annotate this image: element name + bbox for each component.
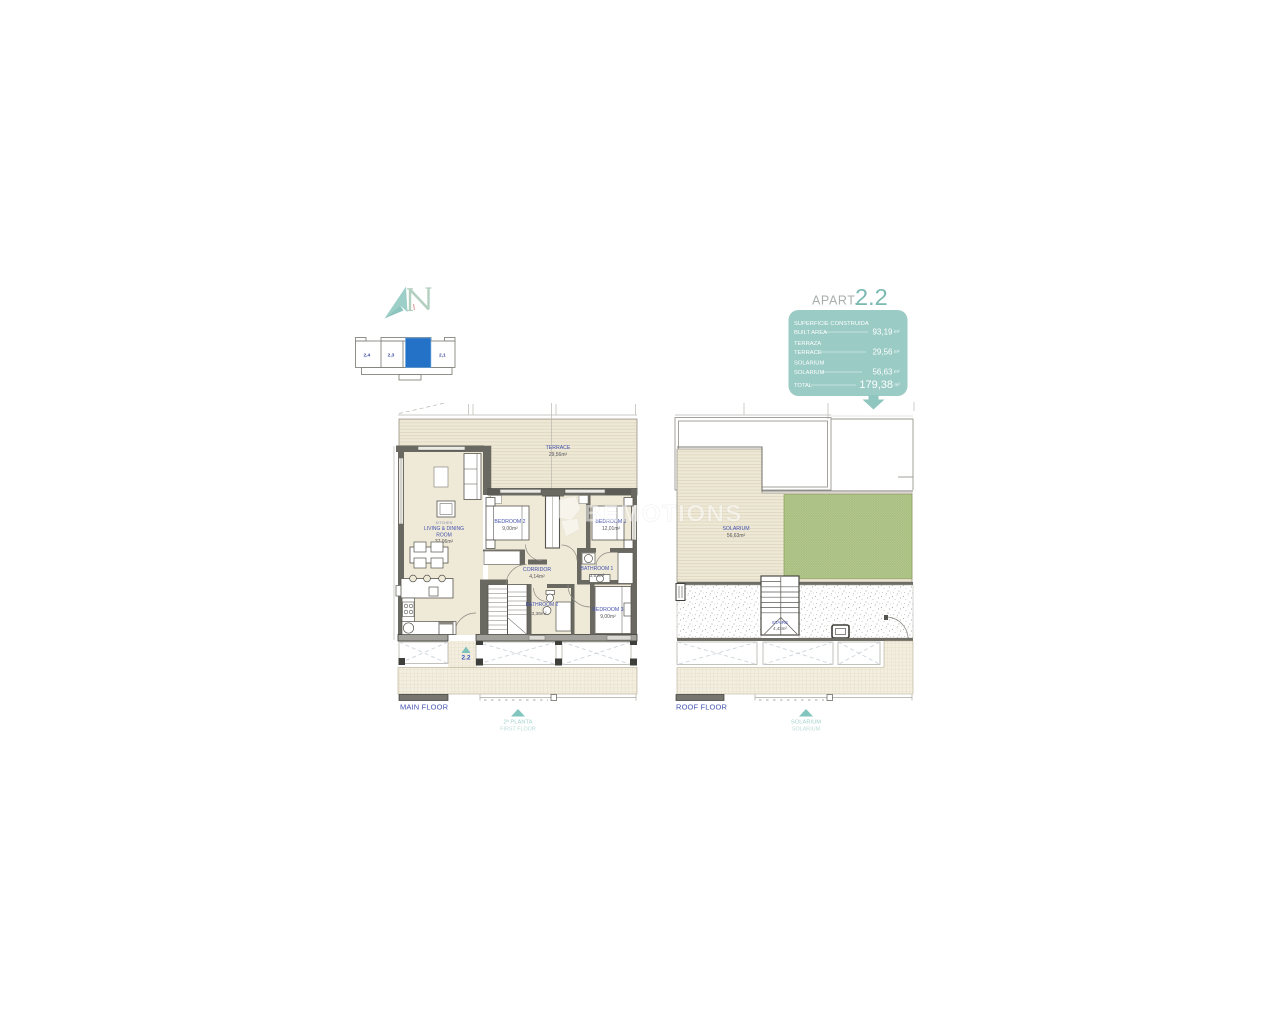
svg-text:LIVING & DINING: LIVING & DINING	[424, 526, 464, 532]
svg-text:ROOM: ROOM	[436, 533, 452, 539]
svg-text:CORRIDOR: CORRIDOR	[523, 567, 551, 573]
svg-text:m²: m²	[894, 329, 900, 334]
svg-text:29,56: 29,56	[872, 348, 893, 357]
svg-text:9,00m²: 9,00m²	[502, 526, 518, 532]
svg-text:TOTAL: TOTAL	[794, 383, 813, 389]
svg-text:BATHROOM 1: BATHROOM 1	[581, 566, 614, 572]
svg-text:SOLARIUM: SOLARIUM	[792, 727, 821, 733]
svg-text:m²: m²	[895, 382, 901, 387]
svg-text:APART.: APART.	[812, 294, 858, 308]
svg-text:TERRAZA: TERRAZA	[794, 341, 821, 347]
svg-text:BEMOTIONS: BEMOTIONS	[584, 501, 743, 528]
svg-text:m²: m²	[894, 349, 900, 354]
svg-text:4,14m²: 4,14m²	[529, 574, 545, 580]
svg-text:29,56m²: 29,56m²	[549, 452, 568, 458]
svg-text:BUILT AREA: BUILT AREA	[794, 330, 827, 336]
svg-text:3,52m²: 3,52m²	[590, 573, 605, 579]
svg-text:56,63: 56,63	[872, 368, 893, 377]
svg-text:2,4: 2,4	[363, 353, 370, 359]
svg-text:SOLARIUM: SOLARIUM	[794, 361, 824, 367]
svg-text:2,1: 2,1	[439, 353, 446, 359]
svg-text:SOLARIUM: SOLARIUM	[794, 370, 824, 376]
svg-text:2.2: 2.2	[855, 284, 888, 310]
svg-text:TERRACE: TERRACE	[546, 445, 571, 451]
svg-text:FIRST FLOOR: FIRST FLOOR	[500, 727, 536, 733]
svg-text:m²: m²	[894, 369, 900, 374]
svg-text:STAIRS: STAIRS	[772, 620, 788, 625]
svg-text:2,3: 2,3	[388, 353, 395, 359]
svg-text:3,36m²: 3,36m²	[532, 611, 547, 617]
svg-text:MAIN FLOOR: MAIN FLOOR	[400, 703, 449, 712]
svg-text:BATHROOM 2: BATHROOM 2	[526, 602, 559, 608]
svg-text:BEDROOM 2: BEDROOM 2	[494, 519, 525, 525]
svg-text:9,00m²: 9,00m²	[600, 614, 616, 620]
svg-text:4,43m²: 4,43m²	[773, 626, 787, 631]
svg-text:56,63m²: 56,63m²	[727, 533, 746, 539]
svg-text:ROOF FLOOR: ROOF FLOOR	[676, 703, 728, 712]
svg-text:KITCHEN: KITCHEN	[436, 521, 453, 525]
svg-text:93,19: 93,19	[872, 328, 893, 337]
svg-text:179,38: 179,38	[859, 379, 893, 391]
svg-text:TERRACE: TERRACE	[794, 350, 822, 356]
svg-text:SUPERFICIE CONSTRUIDA: SUPERFICIE CONSTRUIDA	[794, 321, 869, 327]
svg-text:2.2: 2.2	[461, 655, 470, 662]
svg-text:2ª PLANTA: 2ª PLANTA	[503, 719, 532, 726]
svg-text:SOLARIUM: SOLARIUM	[791, 720, 821, 726]
svg-text:BEDROOM 3: BEDROOM 3	[592, 607, 623, 613]
